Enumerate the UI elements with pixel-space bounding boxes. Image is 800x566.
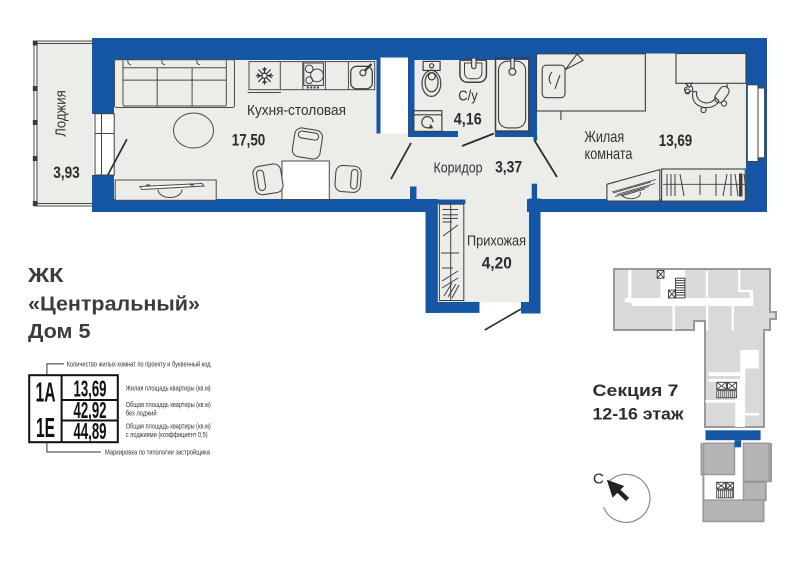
svg-text:С: С [593,471,604,488]
svg-text:44,89: 44,89 [74,418,107,444]
svg-text:4,20: 4,20 [482,254,512,273]
svg-text:13,69: 13,69 [659,131,693,150]
svg-text:Маркировка по типологии застро: Маркировка по типологии застройщика [105,448,210,457]
svg-text:12-16 этаж: 12-16 этаж [593,405,685,424]
svg-text:3,93: 3,93 [53,163,80,182]
svg-text:1Е: 1Е [36,412,55,443]
svg-text:Секция 7: Секция 7 [593,381,679,400]
svg-text:4,16: 4,16 [454,110,482,129]
svg-text:Коридор: Коридор [434,160,483,177]
svg-text:Количество жилых комнат по про: Количество жилых комнат по проекту и бук… [67,360,212,369]
svg-text:с лоджиями (коэффициент 0,5): с лоджиями (коэффициент 0,5) [126,430,208,439]
svg-text:Прихожая: Прихожая [467,233,526,250]
svg-text:Кухня-столовая: Кухня-столовая [247,102,346,119]
svg-text:С/у: С/у [458,88,478,105]
svg-text:комната: комната [585,146,633,163]
svg-text:1А: 1А [36,376,56,407]
svg-text:без лоджий: без лоджий [126,409,157,418]
svg-text:Жилая площадь квартиры (кв.м): Жилая площадь квартиры (кв.м) [126,384,211,393]
svg-text:3,37: 3,37 [495,158,522,177]
svg-text:ЖК: ЖК [27,265,65,287]
svg-text:Дом 5: Дом 5 [28,321,91,343]
svg-text:«Центральный»: «Центральный» [28,294,200,316]
svg-text:Лоджия: Лоджия [53,90,70,137]
svg-text:17,50: 17,50 [232,131,266,150]
svg-text:Жилая: Жилая [584,129,624,146]
